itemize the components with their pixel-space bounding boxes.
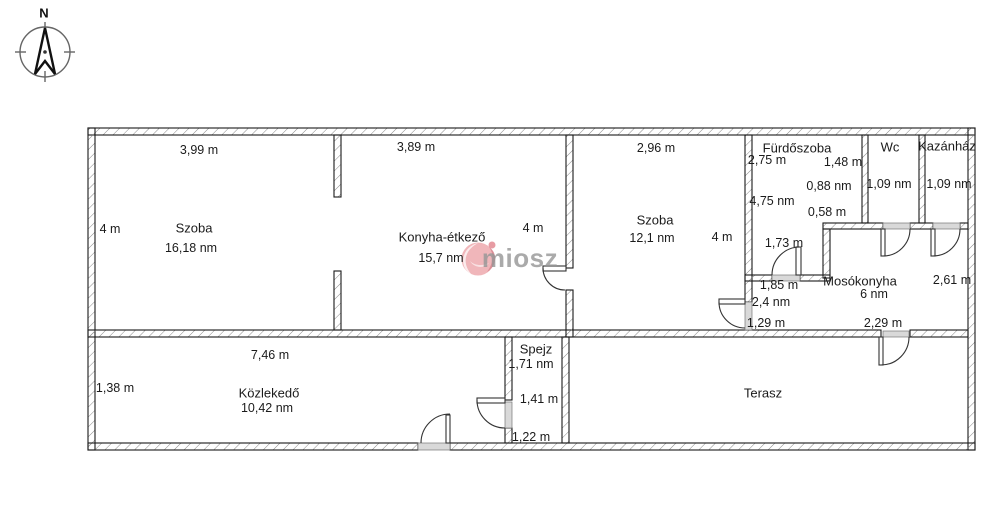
dim-label-kozlekedo-left: 1,38 m: [96, 382, 134, 395]
dim-label-konyha-right: 4 m: [523, 222, 544, 235]
room-label-spejz: Spejz: [520, 343, 553, 356]
room-label-mosokonyha: Mosókonyha: [823, 275, 897, 288]
door-leaf-furdoszoba: [796, 247, 801, 275]
door-arc-wc: [883, 229, 910, 256]
dim-label-spejz-bottom: 1,22 m: [512, 431, 550, 444]
door-leaf-kazanhaz: [931, 229, 935, 256]
area-label-furdoszoba-niche: 0,88 nm: [806, 180, 851, 193]
wall-mid-horizontal-left: [88, 330, 881, 337]
room-label-konyha: Konyha-étkező: [399, 231, 486, 244]
wall-szoba1-konyha-bottom: [334, 271, 341, 330]
area-label-eloter: 2,4 nm: [752, 296, 790, 309]
dim-label-spejz-mid: 1,41 m: [520, 393, 558, 406]
dim-label-mosokonyha-right: 2,61 m: [933, 274, 971, 287]
area-label-kozlekedo: 10,42 nm: [241, 402, 293, 415]
area-label-szoba2: 12,1 nm: [629, 232, 674, 245]
wall-under-wc-1: [823, 223, 883, 229]
dim-label-szoba2-top: 2,96 m: [637, 142, 675, 155]
dim-label-furdoszoba-height: 1,73 m: [765, 237, 803, 250]
door-sill-wc: [883, 223, 910, 229]
room-label-kazanhaz: Kazánház: [918, 140, 976, 153]
area-label-kazanhaz: 1,09 nm: [926, 178, 971, 191]
dim-label-eloter-height: 1,29 m: [747, 317, 785, 330]
wall-outer-left: [88, 128, 95, 450]
door-arc-terasz: [881, 337, 909, 365]
door-leaf-szoba2: [719, 299, 745, 304]
dim-label-szoba2-right: 4 m: [712, 231, 733, 244]
dim-label-eloter-width: 1,85 m: [760, 279, 798, 292]
compass-icon: [15, 22, 75, 82]
area-label-konyha: 15,7 nm: [418, 252, 463, 265]
wall-spejz-right: [562, 337, 569, 443]
wall-under-kazanhaz: [960, 223, 968, 229]
door-arc-spejz: [477, 400, 505, 428]
door-sill-entry: [418, 443, 450, 450]
dim-label-furdoszoba-width: 2,75 m: [748, 154, 786, 167]
room-label-wc: Wc: [881, 141, 900, 154]
compass-north-label: N: [39, 7, 48, 20]
wall-outer-bottom-right: [450, 443, 975, 450]
floorplan-canvas: N miosz 3,99 m 4 m Szoba 16,18 nm 3,89 m…: [0, 0, 1000, 511]
dim-label-konyha-top: 3,89 m: [397, 141, 435, 154]
area-label-wc: 1,09 nm: [866, 178, 911, 191]
area-label-mosokonyha: 6 nm: [860, 288, 888, 301]
door-sill-kazanhaz: [933, 223, 960, 229]
room-label-terasz: Terasz: [744, 387, 782, 400]
wall-konyha-szoba2-top: [566, 135, 573, 268]
dim-label-furdoszoba-niche-h: 0,58 m: [808, 206, 846, 219]
door-arc-kazanhaz: [933, 229, 960, 256]
wall-under-wc-2: [910, 223, 933, 229]
room-label-szoba1: Szoba: [176, 222, 213, 235]
area-label-szoba1: 16,18 nm: [165, 242, 217, 255]
dim-label-mosokonyha-bottom: 2,29 m: [864, 317, 902, 330]
wall-mosokonyha-left: [823, 229, 830, 278]
wall-outer-top: [88, 128, 975, 135]
wall-konyha-szoba2-bottom: [566, 290, 573, 337]
door-leaf-wc: [881, 229, 885, 256]
room-label-kozlekedo: Közlekedő: [239, 387, 300, 400]
dim-label-kozlekedo-top: 7,46 m: [251, 349, 289, 362]
door-leaf-spejz: [477, 398, 505, 403]
dim-label-szoba1-top: 3,99 m: [180, 144, 218, 157]
wall-mid-horizontal-right: [910, 330, 968, 337]
dim-label-furdoszoba-niche-w: 1,48 m: [824, 156, 862, 169]
door-arc-szoba2: [719, 302, 745, 328]
door-sill-spejz: [505, 402, 512, 428]
area-label-furdoszoba: 4,75 nm: [749, 195, 794, 208]
wall-outer-bottom-left: [88, 443, 418, 450]
door-leaf-terasz: [879, 337, 883, 365]
door-leaf-entry: [446, 415, 450, 443]
area-label-spejz: 1,71 nm: [508, 358, 553, 371]
door-sill-terasz: [883, 331, 909, 337]
room-label-szoba2: Szoba: [637, 214, 674, 227]
wall-szoba1-konyha-top: [334, 135, 341, 197]
dim-label-szoba1-left: 4 m: [100, 223, 121, 236]
watermark-text: miosz: [482, 245, 558, 271]
